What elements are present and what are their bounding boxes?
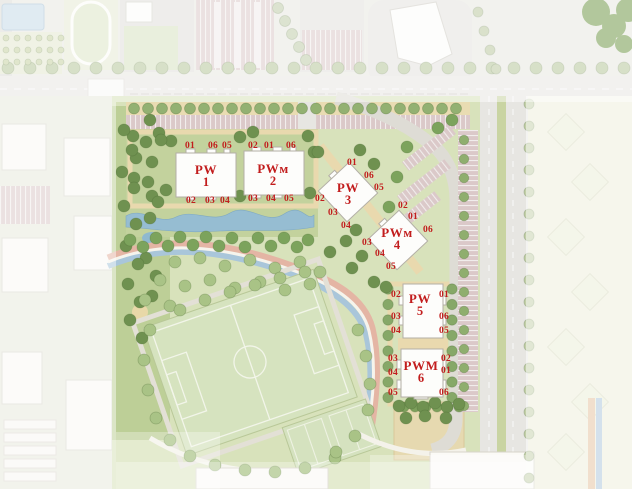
building-pw6 bbox=[397, 349, 446, 399]
vertical-street bbox=[478, 96, 528, 489]
building-pw1 bbox=[176, 149, 236, 200]
building-pw2 bbox=[244, 147, 304, 198]
street-median bbox=[497, 96, 506, 489]
site-plan-map: PW1010605020304PWм2020106030405PW3010605… bbox=[0, 0, 632, 489]
building-pw5 bbox=[399, 284, 446, 338]
site-plan-graphic bbox=[0, 0, 632, 489]
